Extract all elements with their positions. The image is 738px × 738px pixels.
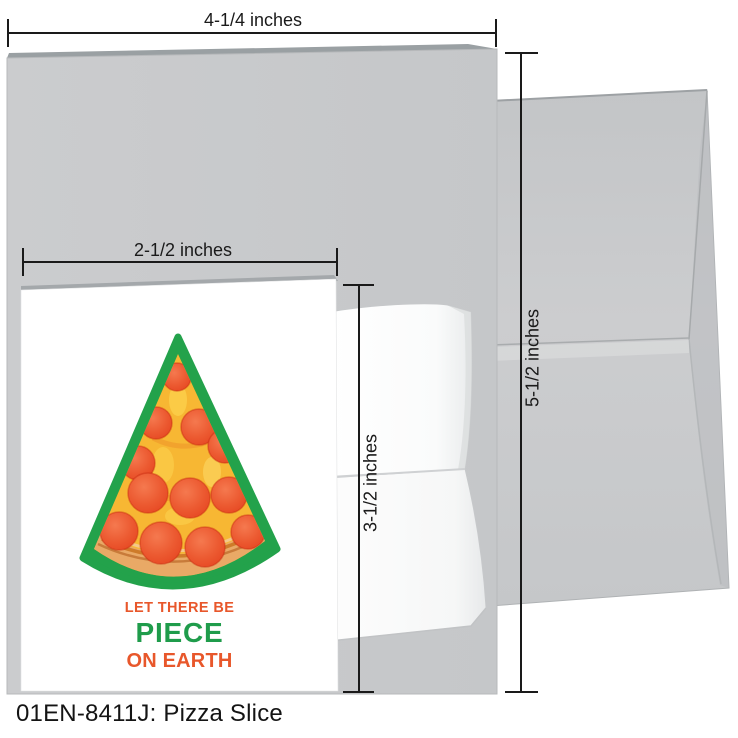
inner-pages (330, 304, 486, 641)
pizza-slice-illustration (60, 330, 300, 598)
card-greeting-text: LET THERE BE PIECE ON EARTH (21, 601, 338, 671)
small-card-width-line (23, 261, 338, 263)
inner-page-top (330, 304, 472, 478)
large-card-height-label: 5-1/2 inches (523, 309, 544, 407)
dimension-tick (22, 248, 24, 276)
large-card-width-label: 4-1/4 inches (204, 10, 302, 31)
dimension-tick (495, 19, 497, 47)
dimension-tick (505, 52, 538, 54)
card-text-line2: PIECE (21, 619, 338, 647)
dimension-tick (336, 248, 338, 276)
large-card-height-line (520, 53, 522, 693)
large-card-width-line (8, 32, 497, 34)
inner-page-bottom (330, 469, 486, 641)
dimension-tick (343, 691, 374, 693)
small-card-height-line (358, 285, 360, 693)
small-card-height-label: 3-1/2 inches (361, 434, 382, 532)
dimension-tick (343, 284, 374, 286)
card-text-line1: LET THERE BE (21, 601, 338, 616)
dimension-tick (7, 19, 9, 47)
dimension-tick (505, 691, 538, 693)
product-image: { "scene": { "caption": "01EN-8411J: Piz… (0, 0, 738, 738)
product-caption: 01EN-8411J: Pizza Slice (16, 700, 283, 728)
small-card-width-label: 2-1/2 inches (134, 240, 232, 261)
card-text-line3: ON EARTH (21, 651, 338, 671)
